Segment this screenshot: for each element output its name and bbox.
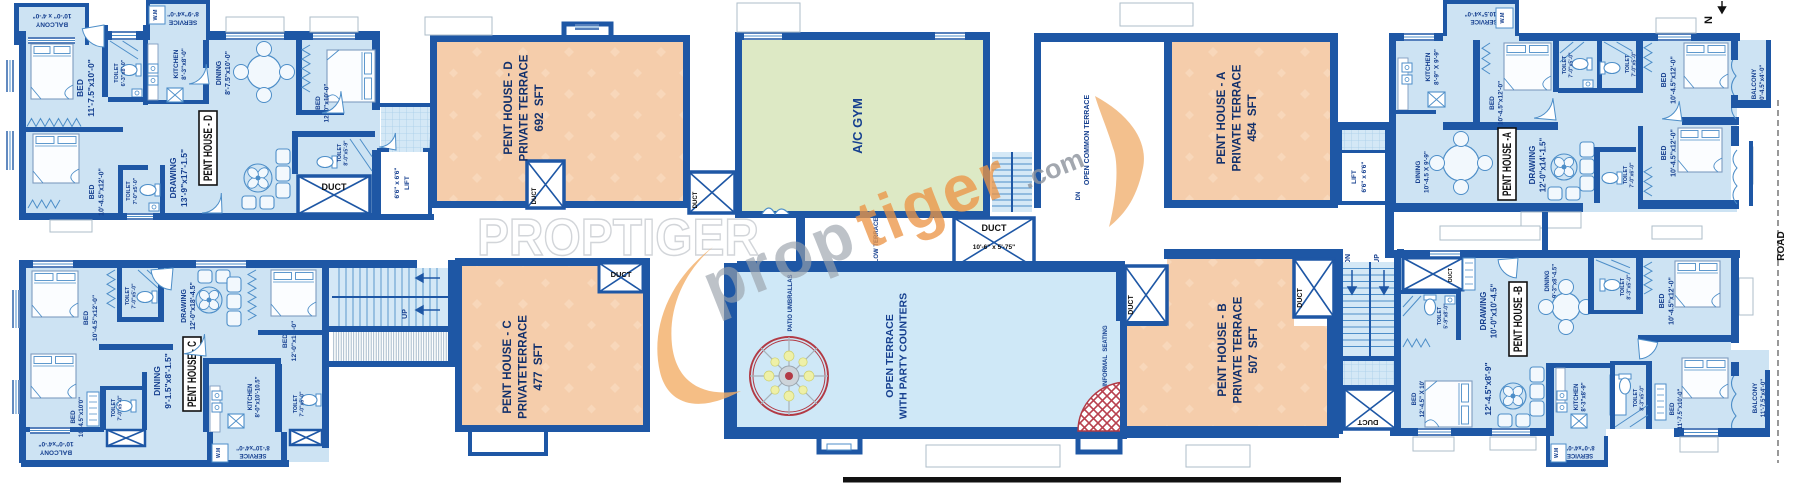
svg-text:DUCT: DUCT [693, 191, 699, 208]
svg-text:507 SFT: 507 SFT [1248, 326, 1260, 373]
svg-text:DINING: DINING [216, 60, 223, 85]
svg-text:TOILET: TOILET [337, 143, 343, 162]
svg-text:WITH PARTY COUNTERS: WITH PARTY COUNTERS [898, 293, 910, 419]
svg-text:W.M: W.M [153, 9, 159, 20]
svg-text:10'-0" x 4'-0": 10'-0" x 4'-0" [33, 12, 72, 19]
svg-text:454 SFT: 454 SFT [1247, 94, 1259, 141]
svg-text:TOILET: TOILET [111, 398, 117, 417]
svg-text:8'-3"x5'-0": 8'-3"x5'-0" [1640, 385, 1646, 411]
svg-text:9'-3"x8'-4.5": 9'-3"x8'-4.5" [1553, 264, 1559, 298]
svg-text:10'-4.5 X 9'-9": 10'-4.5 X 9'-9" [1424, 151, 1431, 193]
svg-text:477 SFT: 477 SFT [533, 343, 545, 390]
svg-text:7'-0"x5'-0": 7'-0"x5'-0" [300, 391, 306, 417]
svg-text:DUCT: DUCT [532, 187, 538, 204]
svg-text:DUCT: DUCT [1448, 268, 1454, 282]
svg-text:8'-3"x8'-9": 8'-3"x8'-9" [1582, 382, 1588, 411]
svg-text:12'-0"x18'-4.5": 12'-0"x18'-4.5" [190, 282, 197, 330]
svg-text:10'-0"x10'-4.5": 10'-0"x10'-4.5" [1490, 284, 1499, 339]
svg-text:TOILET: TOILET [125, 286, 131, 305]
svg-text:BED: BED [315, 96, 322, 110]
svg-text:BED: BED [282, 334, 289, 348]
svg-text:8'-0"x10'-10.5": 8'-0"x10'-10.5" [256, 376, 262, 417]
svg-text:W.M: W.M [1554, 448, 1560, 458]
svg-text:10'-0"x4'-0": 10'-0"x4'-0" [38, 440, 73, 447]
svg-text:10'-4.5"x12'-0": 10'-4.5"x12'-0" [1671, 56, 1678, 104]
svg-text:N: N [1703, 16, 1715, 24]
svg-text:BALCONY: BALCONY [35, 21, 68, 28]
svg-text:8'-0"x5'-9": 8'-0"x5'-9" [344, 140, 350, 166]
svg-text:DRAWING: DRAWING [168, 157, 178, 198]
svg-text:10'-4.5"x12'-0": 10'-4.5"x12'-0" [1671, 129, 1678, 177]
svg-text:7'-0"x5'-0": 7'-0"x5'-0" [133, 177, 139, 204]
svg-text:TOILET: TOILET [1437, 306, 1443, 325]
svg-text:BED: BED [1659, 294, 1666, 309]
svg-text:13'-9"x17'-1.5": 13'-9"x17'-1.5" [179, 149, 189, 207]
svg-text:5'-9"x8'-0": 5'-9"x8'-0" [1444, 303, 1450, 329]
svg-text:KITCHEN: KITCHEN [1574, 384, 1580, 411]
svg-text:DINING: DINING [152, 366, 162, 396]
svg-text:BED: BED [1670, 402, 1676, 415]
svg-text:7'-0"x5'-0": 7'-0"x5'-0" [1569, 52, 1575, 78]
svg-text:DUCT: DUCT [611, 270, 632, 279]
svg-text:TOILET: TOILET [126, 181, 132, 201]
svg-text:8'-10"x4'-0": 8'-10"x4'-0" [236, 444, 270, 451]
svg-text:W.M: W.M [1500, 12, 1506, 23]
svg-text:PENT HOUSE -A: PENT HOUSE -A [1502, 132, 1514, 196]
svg-text:10'-4.5"x12'-0": 10'-4.5"x12'-0" [1498, 81, 1505, 125]
svg-text:11'-7.5"x10'-0": 11'-7.5"x10'-0" [1678, 389, 1684, 430]
svg-text:692 SFT: 692 SFT [534, 84, 546, 131]
svg-text:6'6" x 6'6": 6'6" x 6'6" [1361, 162, 1368, 193]
svg-text:KITCHEN: KITCHEN [1425, 52, 1432, 81]
svg-text:DINING: DINING [1545, 270, 1551, 291]
svg-text:9'-1.5"x8'-1.5": 9'-1.5"x8'-1.5" [163, 353, 173, 409]
svg-text:8'-0"x4'-0": 8'-0"x4'-0" [1565, 444, 1594, 450]
svg-text:TOILET: TOILET [1620, 277, 1626, 296]
svg-text:DUCT: DUCT [322, 182, 347, 192]
svg-text:W.M: W.M [216, 448, 222, 458]
svg-text:SERVICE: SERVICE [1567, 452, 1593, 458]
svg-text:DINING: DINING [1415, 161, 1422, 184]
svg-text:PENT HOUSE - B: PENT HOUSE - B [1217, 303, 1229, 396]
svg-text:10'-4.5"x4'-0": 10'-4.5"x4'-0" [1759, 65, 1766, 104]
svg-text:12'-4.5"x8'-9": 12'-4.5"x8'-9" [1483, 362, 1493, 415]
svg-text:PRIVATE TERRACE: PRIVATE TERRACE [1232, 64, 1244, 171]
svg-text:12'-4.5" X 10': 12'-4.5" X 10' [1420, 380, 1426, 417]
svg-text:6'6" x 6'6": 6'6" x 6'6" [394, 168, 401, 199]
svg-text:PENT HOUSE -B: PENT HOUSE -B [1513, 286, 1525, 352]
svg-text:7'-0"x5'-0": 7'-0"x5'-0" [132, 283, 138, 309]
svg-text:PENT HOUSE - C: PENT HOUSE - C [502, 320, 514, 413]
svg-text:8'-3"x5'-0": 8'-3"x5'-0" [1627, 274, 1633, 300]
svg-text:BALCONY: BALCONY [1752, 382, 1759, 413]
svg-text:11'-7.5"x10'-0": 11'-7.5"x10'-0" [86, 59, 96, 116]
svg-text:BED: BED [1412, 392, 1418, 405]
svg-text:ROAD: ROAD [1776, 231, 1787, 260]
svg-text:8'-9" X 9'-9": 8'-9" X 9'-9" [1434, 49, 1441, 85]
svg-text:BED: BED [83, 311, 90, 325]
svg-text:INFORMAL SEATING: INFORMAL SEATING [1103, 325, 1109, 387]
svg-text:TOILET: TOILET [1623, 165, 1629, 184]
svg-text:7'-0"x5'-0": 7'-0"x5'-0" [118, 395, 124, 421]
svg-text:BALCONY: BALCONY [1751, 68, 1758, 99]
svg-text:SERVICE: SERVICE [239, 452, 266, 459]
svg-text:UP: UP [402, 309, 409, 319]
svg-text:BED: BED [1489, 96, 1496, 110]
svg-text:TOILET: TOILET [1625, 54, 1631, 73]
svg-text:7'-0"x6'-0": 7'-0"x6'-0" [1630, 162, 1636, 188]
svg-text:TOILET: TOILET [1633, 388, 1639, 407]
svg-text:DUCT: DUCT [1128, 295, 1135, 315]
svg-text:10'-4.5"x12'-0": 10'-4.5"x12'-0" [92, 295, 99, 341]
svg-text:SERVICE: SERVICE [1470, 18, 1497, 25]
svg-text:8'-3"x8'-0": 8'-3"x8'-0" [181, 48, 188, 80]
svg-text:10'-4.5"x12'-0": 10'-4.5"x12'-0" [99, 168, 106, 216]
svg-text:6'-3"x8'-0": 6'-3"x8'-0" [121, 59, 127, 86]
svg-text:BED: BED [70, 410, 77, 424]
svg-text:TOILET: TOILET [1562, 55, 1568, 74]
svg-text:DRAWING: DRAWING [1479, 292, 1488, 331]
svg-text:KITCHEN: KITCHEN [248, 384, 254, 411]
svg-text:DRAWING: DRAWING [181, 289, 188, 323]
svg-text:TOILET: TOILET [293, 394, 299, 413]
svg-text:PRIVATE TERRACE: PRIVATE TERRACE [1233, 296, 1245, 403]
svg-text:PENT HOUSE - A: PENT HOUSE - A [1216, 72, 1228, 165]
svg-text:OPEN TERRACE: OPEN TERRACE [884, 314, 896, 397]
svg-text:DUCT: DUCT [1297, 288, 1304, 308]
svg-text:BED: BED [89, 185, 96, 200]
svg-text:A/C GYM: A/C GYM [850, 98, 865, 154]
svg-text:DRAWING: DRAWING [1528, 146, 1537, 185]
svg-text:PENT HOUSE - D: PENT HOUSE - D [503, 61, 515, 154]
svg-text:PENT HOUSE - D: PENT HOUSE - D [203, 115, 215, 181]
svg-text:12'-0"x14'-1.5": 12'-0"x14'-1.5" [1539, 138, 1548, 193]
svg-text:BED: BED [1661, 73, 1668, 88]
svg-text:SERVICE: SERVICE [168, 19, 197, 26]
svg-text:10'-6" x 5'-75": 10'-6" x 5'-75" [973, 244, 1016, 251]
svg-text:PRIVATETERRACE: PRIVATETERRACE [518, 315, 530, 419]
svg-text:TOILET: TOILET [114, 63, 120, 83]
svg-text:LIFT: LIFT [1351, 170, 1358, 184]
svg-text:12'-0"x10'-0": 12'-0"x10'-0" [324, 84, 331, 123]
svg-text:BED: BED [1661, 146, 1668, 161]
svg-text:DUCT: DUCT [1357, 418, 1378, 427]
svg-text:DUCT: DUCT [982, 223, 1007, 233]
svg-text:10'-4.5"x12'-0": 10'-4.5"x12'-0" [1669, 277, 1676, 325]
svg-text:PRIVATE TERRACE: PRIVATE TERRACE [519, 54, 531, 161]
svg-text:DN: DN [1076, 192, 1082, 201]
svg-text:BALCONY: BALCONY [39, 449, 72, 456]
svg-text:12'-0"x10'-0": 12'-0"x10'-0" [291, 321, 298, 362]
svg-text:BED: BED [75, 79, 85, 97]
svg-text:LIFT: LIFT [404, 176, 411, 190]
svg-text:8'-9"x4'-0": 8'-9"x4'-0" [167, 10, 199, 17]
svg-text:KITCHEN: KITCHEN [173, 49, 180, 78]
svg-text:8'-7.5"x10'-0": 8'-7.5"x10'-0" [225, 51, 232, 95]
